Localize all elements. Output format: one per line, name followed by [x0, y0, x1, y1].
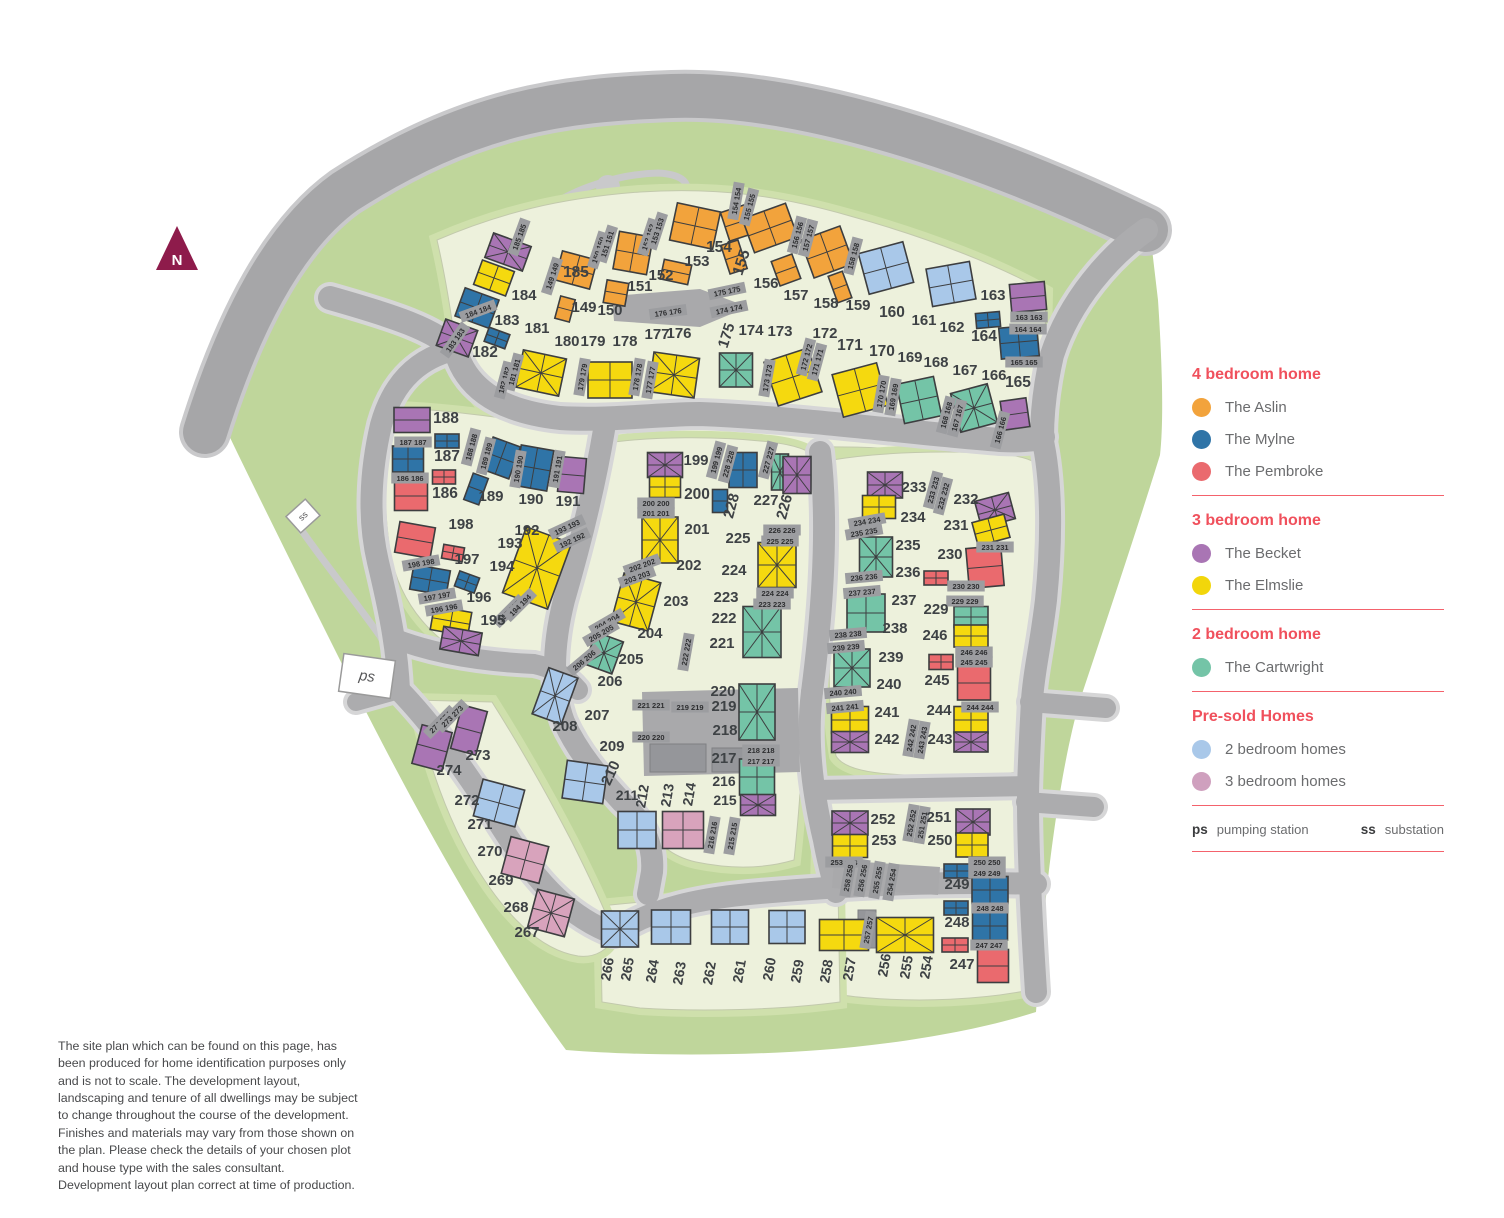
plot-number-label: 169	[897, 349, 922, 366]
plot-number-label: 168	[923, 354, 948, 371]
estate-road	[1026, 802, 1094, 807]
legend-item-label: The Pembroke	[1225, 463, 1323, 480]
parking-label: 253 253	[825, 857, 862, 868]
plot-house	[956, 833, 988, 857]
parking-label: 231 231	[976, 542, 1013, 553]
plot-number-label: 156	[753, 275, 778, 292]
plot-house	[833, 835, 868, 858]
legend-swatch-icon	[1192, 462, 1211, 481]
legend-item-label: 2 bedroom homes	[1225, 741, 1346, 758]
legend-divider	[1192, 805, 1444, 806]
plot-number-label: 268	[503, 899, 528, 916]
plot-number-label: 166	[981, 367, 1006, 384]
plot-house	[769, 911, 805, 944]
parking-label: 229 229	[946, 596, 983, 607]
parking-label: 245 245	[955, 657, 992, 668]
north-arrow-icon: N	[156, 226, 198, 270]
svg-text:201 201: 201 201	[642, 509, 669, 518]
plot-number-label: 149	[571, 299, 596, 316]
plot-number-label: 191	[555, 493, 580, 510]
plot-house	[602, 911, 639, 947]
legend-divider	[1192, 495, 1444, 496]
svg-text:248 248: 248 248	[976, 904, 1003, 913]
parking-label: 224 224	[756, 588, 793, 599]
legend-swatch-icon	[1192, 398, 1211, 417]
parking-label: 250 250	[968, 857, 1005, 868]
plot-number-label: 204	[637, 625, 663, 642]
plot-house	[832, 732, 869, 753]
plot-number-label: 199	[683, 452, 708, 469]
legend-divider	[1192, 609, 1444, 610]
legend-item-label: The Elmslie	[1225, 577, 1303, 594]
plot-number-label: 154	[706, 239, 732, 256]
svg-text:187 187: 187 187	[399, 438, 426, 447]
estate-road	[816, 786, 1028, 790]
plot-number-label: 174	[738, 322, 764, 339]
parking-label: 230 230	[947, 581, 984, 592]
parking-label: 164 164	[1009, 324, 1046, 335]
footnote-label: substation	[1385, 822, 1444, 837]
parking-label: 221 221	[632, 700, 669, 711]
legend-swatch-icon	[1192, 430, 1211, 449]
plot-number-label: 267	[514, 924, 539, 941]
svg-text:244 244: 244 244	[966, 703, 994, 712]
plot-number-label: 233	[901, 479, 926, 496]
parking-label: 247 247	[970, 940, 1007, 951]
legend-section: Pre-sold Homes2 bedroom homes3 bedroom h…	[1192, 708, 1444, 791]
legend-item: The Cartwright	[1192, 658, 1444, 677]
svg-text:163 163: 163 163	[1015, 313, 1042, 322]
plot-house	[975, 311, 1000, 328]
plot-number-label: 198	[448, 516, 473, 533]
legend-section: 3 bedroom homeThe BecketThe Elmslie	[1192, 512, 1444, 595]
plot-number-label: 247	[949, 956, 974, 973]
legend-swatch-icon	[1192, 658, 1211, 677]
legend-section-title: 2 bedroom home	[1192, 626, 1444, 644]
legend: 4 bedroom homeThe AslinThe MylneThe Pemb…	[1192, 366, 1444, 868]
legend-section: 4 bedroom homeThe AslinThe MylneThe Pemb…	[1192, 366, 1444, 481]
plot-house	[743, 607, 781, 658]
plot-number-label: 271	[467, 816, 492, 833]
plot-number-label: 172	[812, 325, 837, 342]
plot-house	[834, 649, 870, 687]
plot-number-label: 240	[876, 676, 901, 693]
parking-label: 186 186	[391, 473, 428, 484]
plot-house	[433, 470, 456, 484]
legend-item-label: The Cartwright	[1225, 659, 1323, 676]
plot-house	[618, 812, 656, 849]
plot-number-label: 182	[472, 344, 498, 361]
plot-number-label: 167	[952, 362, 977, 379]
legend-item-label: The Aslin	[1225, 399, 1287, 416]
plot-house	[741, 795, 776, 816]
plot-number-label: 181	[524, 320, 549, 337]
plot-number-label: 165	[1005, 374, 1031, 391]
site-plan-page: 185 185184 184183 183182 182181 181149 1…	[0, 0, 1504, 1218]
footnote-abbr: ps	[1192, 822, 1208, 837]
plot-house	[926, 261, 976, 306]
plot-house	[394, 408, 430, 433]
parking-label: 249 249	[968, 868, 1005, 879]
legend-divider	[1192, 851, 1444, 852]
svg-text:245 245: 245 245	[960, 658, 987, 667]
svg-text:186 186: 186 186	[396, 474, 423, 483]
plot-number-label: 197	[454, 551, 479, 568]
plot-house	[588, 362, 632, 398]
svg-text:250 250: 250 250	[973, 858, 1000, 867]
plot-number-label: 164	[971, 328, 997, 345]
plot-number-label: 237	[891, 592, 916, 609]
legend-swatch-icon	[1192, 740, 1211, 759]
plot-number-label: 150	[597, 302, 622, 319]
plot-house	[958, 666, 991, 700]
plot-house	[942, 938, 968, 952]
pumping-station-marker: ps	[339, 654, 396, 699]
plot-house	[868, 472, 903, 498]
plot-number-label: 222	[711, 610, 736, 627]
parking-label: 200 200	[637, 498, 674, 509]
plot-house	[954, 625, 988, 647]
footnote-label: pumping station	[1217, 822, 1309, 837]
parking-label: 226 226	[763, 525, 800, 536]
plot-number-label: 163	[980, 287, 1005, 304]
plot-number-label: 248	[944, 914, 969, 931]
plot-house	[847, 594, 885, 632]
legend-swatch-icon	[1192, 772, 1211, 791]
plot-house	[650, 477, 681, 498]
legend-section-title: 3 bedroom home	[1192, 512, 1444, 530]
plot-number-label: 253	[871, 832, 896, 849]
plot-number-label: 219	[711, 698, 736, 715]
plot-number-label: 202	[676, 557, 701, 574]
plot-number-label: 152	[648, 267, 673, 284]
plot-number-label: 231	[943, 517, 968, 534]
legend-item: The Becket	[1192, 544, 1444, 563]
parking-label: 223 223	[753, 599, 790, 610]
plot-number-label: 157	[783, 287, 808, 304]
estate-road	[1030, 702, 1106, 708]
plot-house	[642, 517, 678, 563]
plot-house	[877, 918, 934, 953]
svg-text:164 164: 164 164	[1014, 325, 1042, 334]
plot-number-label: 203	[663, 593, 688, 610]
plot-number-label: 160	[879, 304, 905, 321]
plot-number-label: 273	[465, 747, 490, 764]
plot-house	[652, 910, 691, 944]
plot-number-label: 194	[489, 558, 515, 575]
svg-text:220 220: 220 220	[637, 733, 664, 742]
plot-number-label: 178	[612, 333, 637, 350]
plot-house	[978, 950, 1009, 983]
plot-house	[395, 482, 428, 511]
plot-house	[720, 353, 753, 387]
plot-number-label: 200	[684, 486, 710, 503]
legend-divider	[1192, 691, 1444, 692]
parking-label: 201 201	[637, 508, 674, 519]
plot-number-label: 161	[911, 312, 936, 329]
plot-number-label: 250	[927, 832, 952, 849]
plot-number-label: 272	[454, 792, 479, 809]
plot-number-label: 208	[552, 718, 577, 735]
plot-house	[896, 376, 941, 423]
svg-text:230 230: 230 230	[952, 582, 979, 591]
legend-section-title: Pre-sold Homes	[1192, 708, 1444, 726]
plot-number-label: 243	[927, 731, 952, 748]
plot-house	[972, 877, 1008, 904]
plot-number-label: 251	[926, 809, 951, 826]
plot-number-label: 206	[597, 673, 622, 690]
plot-number-label: 207	[584, 707, 609, 724]
parking-label: 225 225	[761, 536, 798, 547]
plot-house	[944, 901, 968, 915]
plot-number-label: 183	[494, 312, 519, 329]
plot-number-label: 158	[813, 295, 838, 312]
plot-house	[663, 812, 704, 849]
plot-house	[973, 912, 1008, 940]
plot-number-label: 209	[599, 738, 624, 755]
plot-number-label: 232	[953, 491, 978, 508]
legend-item-label: 3 bedroom homes	[1225, 773, 1346, 790]
legend-item-label: The Becket	[1225, 545, 1301, 562]
legend-item: The Aslin	[1192, 398, 1444, 417]
plot-number-label: 184	[511, 287, 537, 304]
plot-number-label: 177	[644, 326, 669, 343]
plot-number-label: 242	[874, 731, 899, 748]
footnote-abbr: ss	[1361, 822, 1376, 837]
parking-label: 165 165	[1005, 357, 1042, 368]
plot-number-label: 221	[709, 635, 734, 652]
garage-block	[650, 744, 706, 772]
svg-text:247 247: 247 247	[975, 941, 1002, 950]
plot-number-label: 270	[477, 843, 502, 860]
plot-house	[954, 732, 988, 752]
svg-text:226 226: 226 226	[768, 526, 795, 535]
plot-number-label: 227	[753, 492, 778, 509]
plot-number-label: 205	[618, 651, 643, 668]
svg-text:221 221: 221 221	[637, 701, 664, 710]
plot-number-label: 159	[845, 297, 870, 314]
plot-house	[1009, 282, 1046, 313]
plot-number-label: 217	[711, 750, 736, 767]
svg-text:223 223: 223 223	[758, 600, 785, 609]
plot-number-label: 216	[712, 773, 736, 789]
plot-number-label: 245	[924, 672, 949, 689]
svg-text:165 165: 165 165	[1010, 358, 1037, 367]
plot-number-label: 246	[922, 627, 947, 644]
svg-text:225 225: 225 225	[766, 537, 793, 546]
plot-number-label: 236	[895, 564, 920, 581]
svg-text:249 249: 249 249	[973, 869, 1000, 878]
parking-label: 220 220	[632, 732, 669, 743]
plot-number-label: 188	[433, 410, 459, 427]
plot-number-label: 190	[518, 491, 543, 508]
plot-number-label: 185	[563, 264, 589, 281]
svg-text:217 217: 217 217	[747, 757, 774, 766]
plot-house	[924, 571, 948, 585]
plot-number-label: 186	[432, 485, 458, 502]
plot-number-label: 274	[436, 762, 462, 779]
parking-label: 217 217	[742, 756, 779, 767]
svg-text:246 246: 246 246	[960, 648, 987, 657]
parking-label: 246 246	[955, 647, 992, 658]
plot-number-label: 179	[580, 333, 605, 350]
plot-number-label: 241	[874, 704, 899, 721]
plot-number-label: 215	[713, 792, 737, 808]
plot-number-label: 224	[721, 562, 747, 579]
plot-number-label: 249	[944, 876, 969, 893]
plot-number-label: 187	[434, 448, 460, 465]
svg-text:N: N	[172, 252, 183, 269]
plot-house	[393, 446, 424, 472]
plot-house	[783, 457, 811, 494]
legend-item: The Elmslie	[1192, 576, 1444, 595]
parking-label: 187 187	[394, 437, 431, 448]
plot-number-label: 229	[923, 601, 948, 618]
svg-text:229 229: 229 229	[951, 597, 978, 606]
plot-house	[929, 655, 953, 670]
plot-number-label: 176	[666, 325, 691, 342]
svg-text:231 231: 231 231	[981, 543, 1008, 552]
svg-text:200 200: 200 200	[642, 499, 669, 508]
svg-text:224 224: 224 224	[761, 589, 789, 598]
plot-number-label: 162	[939, 319, 964, 336]
plot-number-label: 220	[710, 683, 735, 700]
plot-number-label: 235	[895, 537, 920, 554]
plot-number-label: 238	[882, 620, 907, 637]
parking-label: 218 218	[742, 745, 779, 756]
parking-label: 244 244	[961, 702, 998, 713]
svg-text:219 219: 219 219	[676, 703, 703, 712]
plot-house	[395, 522, 436, 559]
plot-number-label: 225	[725, 530, 750, 547]
plot-number-label: 193	[497, 535, 522, 552]
parking-label: 219 219	[671, 702, 708, 713]
plot-number-label: 189	[478, 488, 503, 505]
parking-label: 163 163	[1010, 312, 1047, 323]
svg-text:ps: ps	[357, 667, 377, 686]
plot-number-label: 223	[713, 589, 738, 606]
plot-house	[435, 434, 459, 448]
legend-item: 2 bedroom homes	[1192, 740, 1444, 759]
plot-number-label: 218	[712, 722, 737, 739]
disclaimer-text: The site plan which can be found on this…	[58, 1038, 360, 1194]
parking-label: 248 248	[971, 903, 1008, 914]
plot-number-label: 170	[869, 343, 895, 360]
plot-number-label: 230	[937, 546, 962, 563]
estate-road	[812, 452, 824, 692]
plot-number-label: 239	[878, 649, 903, 666]
plot-number-label: 171	[837, 337, 863, 354]
legend-section: 2 bedroom homeThe Cartwright	[1192, 626, 1444, 677]
plot-number-label: 195	[480, 612, 505, 629]
plot-number-label: 269	[488, 872, 513, 889]
legend-item-label: The Mylne	[1225, 431, 1295, 448]
plot-number-label: 196	[466, 589, 491, 606]
legend-swatch-icon	[1192, 544, 1211, 563]
plot-number-label: 244	[926, 702, 952, 719]
plot-number-label: 252	[870, 811, 895, 828]
legend-section-title: 4 bedroom home	[1192, 366, 1444, 384]
legend-item: The Pembroke	[1192, 462, 1444, 481]
plot-house	[739, 684, 775, 740]
legend-footnotes: pspumping stationsssubstation	[1192, 822, 1444, 837]
legend-item: The Mylne	[1192, 430, 1444, 449]
plot-number-label: 180	[554, 333, 579, 350]
legend-item: 3 bedroom homes	[1192, 772, 1444, 791]
legend-swatch-icon	[1192, 576, 1211, 595]
plot-number-label: 234	[900, 509, 926, 526]
plot-number-label: 201	[684, 521, 709, 538]
plot-house	[956, 809, 990, 835]
plot-house	[832, 811, 868, 835]
plot-house	[758, 543, 796, 588]
plot-house	[648, 453, 683, 478]
svg-text:218 218: 218 218	[747, 746, 774, 755]
plot-number-label: 173	[767, 323, 792, 340]
plot-house	[712, 910, 749, 944]
